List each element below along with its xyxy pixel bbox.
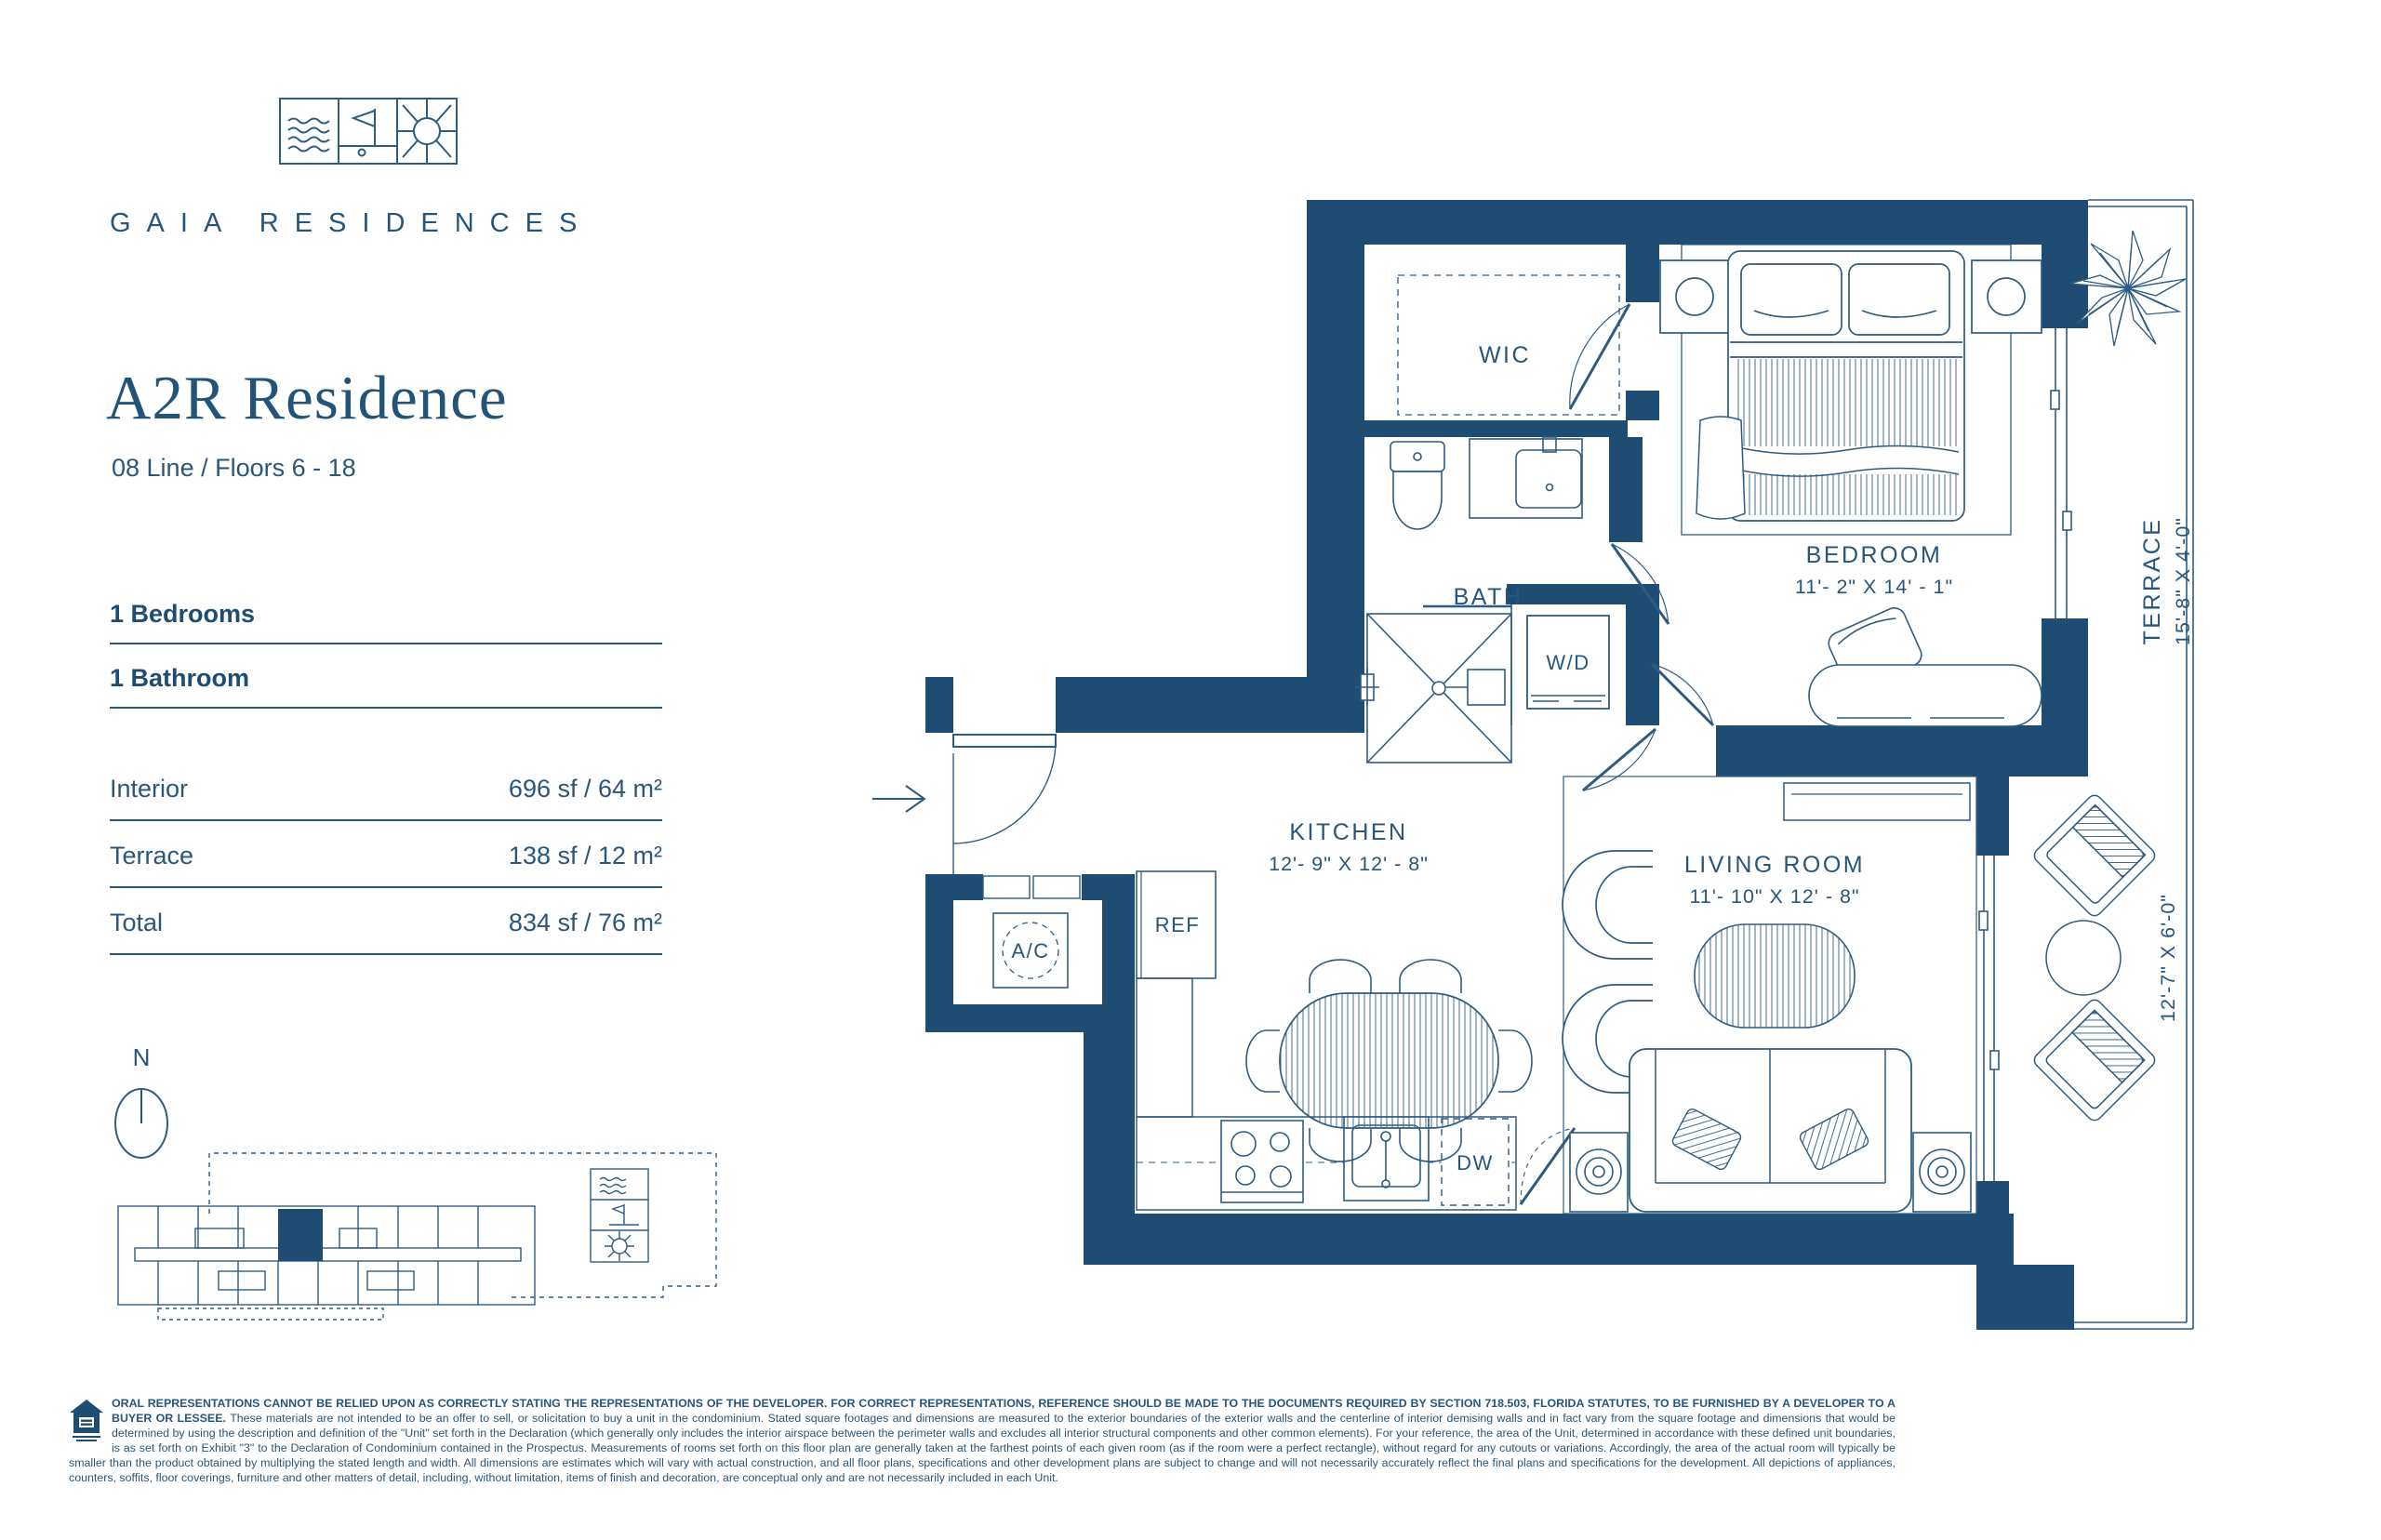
golf-flag-icon (339, 99, 397, 164)
bedroom-door (1652, 664, 1713, 725)
shower (1355, 606, 1511, 763)
dining-chair (1400, 960, 1461, 993)
area-value: 138 sf / 12 m² (509, 842, 662, 870)
lounge-chair (2031, 792, 2158, 919)
area-label: Terrace (110, 842, 193, 870)
bedroom: BEDROOM 11'- 2" X 14' - 1" (1660, 245, 2042, 726)
room-label-ref: REF (1155, 913, 1201, 936)
room-dims-kitchen: 12'- 9" X 12' - 8" (1269, 853, 1429, 875)
room-label-wd: W/D (1546, 651, 1590, 674)
toilet-icon (1390, 442, 1444, 471)
waves-icon (280, 99, 339, 164)
ac-closet: A/C (983, 876, 1080, 988)
area-row-total: Total 834 sf / 76 m² (110, 909, 662, 955)
wd-door-leaf (1583, 729, 1656, 790)
bath-sink-icon (1516, 450, 1581, 508)
wic-door-leaf (1570, 304, 1629, 409)
stove-icon (1221, 1121, 1303, 1202)
room-label-dw: DW (1457, 1151, 1494, 1175)
dishwasher: DW (1442, 1119, 1509, 1205)
unit-line-info: 08 Line / Floors 6 - 18 (112, 454, 356, 483)
living-rug (1695, 924, 1855, 1028)
sofa-icon (1629, 1049, 1911, 1212)
unit-title: A2R Residence (106, 363, 508, 434)
room-label-wic: WIC (1479, 342, 1531, 368)
entry (872, 735, 1056, 874)
console-table (1784, 783, 1970, 820)
terrace-table (2046, 921, 2121, 995)
pantry-door-leaf (1521, 1128, 1575, 1204)
room-label-kitchen: KITCHEN (1289, 819, 1407, 845)
nightstand (1660, 260, 1730, 333)
dining-chair (1246, 1030, 1280, 1092)
room-label-terrace: TERRACE (2139, 518, 2165, 645)
room-label-living: LIVING ROOM (1684, 852, 1865, 878)
living-slider-door (1979, 856, 1999, 1181)
nightstand (1972, 260, 2042, 333)
entry-door-leaf (953, 735, 1056, 747)
key-plan-building (118, 1206, 535, 1305)
waves-icon (600, 1178, 626, 1194)
refrigerator: REF (1137, 871, 1216, 978)
terrace-edges (2074, 200, 2193, 1329)
room-dims-terrace: 15'-8" X 4'-0" (2172, 517, 2194, 645)
gaia-logo (279, 98, 458, 165)
room-label-bedroom: BEDROOM (1806, 542, 1943, 568)
side-speaker (1570, 1133, 1628, 1212)
entry-door-swing (953, 742, 1056, 843)
area-row-terrace: Terrace 138 sf / 12 m² (110, 842, 662, 888)
area-label: Interior (110, 775, 188, 803)
floor-plan: WIC BATH (865, 112, 2316, 1348)
side-speaker (1913, 1133, 1971, 1212)
disclaimer: ORAL REPRESENTATIONS CANNOT BE RELIED UP… (69, 1397, 1895, 1485)
key-plan-unit-highlight (278, 1209, 323, 1261)
area-value: 834 sf / 76 m² (509, 909, 662, 937)
wic-room: WIC (1398, 275, 1629, 415)
entry-arrow-icon (872, 786, 924, 812)
area-value: 696 sf / 64 m² (509, 775, 662, 803)
room-label-ac: A/C (1011, 939, 1049, 962)
brand-name: GAIA RESIDENCES (110, 208, 592, 239)
sun-icon (612, 1239, 627, 1254)
terrace-upper: TERRACE 15'-8" X 4'-0" (2070, 231, 2194, 645)
bedrooms-spec: 1 Bedrooms (110, 600, 662, 644)
key-plan (107, 1139, 758, 1339)
equal-housing-icon (69, 1399, 104, 1443)
area-row-interior: Interior 696 sf / 64 m² (110, 775, 662, 821)
room-dims-terrace-side: 12'-7" X 6'-0" (2157, 894, 2179, 1022)
bathrooms-spec: 1 Bathroom (110, 664, 662, 709)
lounge-chair (2031, 997, 2158, 1123)
desk-and-chair (1809, 604, 2042, 726)
area-label: Total (110, 909, 163, 937)
terrace-lower: 12'-7" X 6'-0" (2031, 792, 2179, 1123)
golf-flag-icon (609, 1204, 639, 1225)
blanket-drape (1696, 417, 1745, 519)
dining-chair (1498, 1030, 1532, 1092)
room-dims-bedroom: 11'- 2" X 14' - 1" (1795, 576, 1953, 598)
disclaimer-body: These materials are not intended to be a… (69, 1412, 1895, 1484)
north-label: N (133, 1043, 151, 1071)
bedroom-slider-door (2051, 328, 2071, 618)
bedroom-door-leaf (1652, 664, 1713, 725)
key-plan-lower-units (158, 1308, 383, 1320)
mini-logo (591, 1169, 648, 1262)
dining-chair (1310, 960, 1371, 993)
floor-plan-page: GAIA RESIDENCES A2R Residence 08 Line / … (0, 0, 2381, 1540)
living-room: LIVING ROOM 11'- 10" X 12' - 8" (1563, 777, 1976, 1214)
room-dims-living: 11'- 10" X 12' - 8" (1689, 885, 1859, 908)
shower-valve (1468, 670, 1505, 705)
